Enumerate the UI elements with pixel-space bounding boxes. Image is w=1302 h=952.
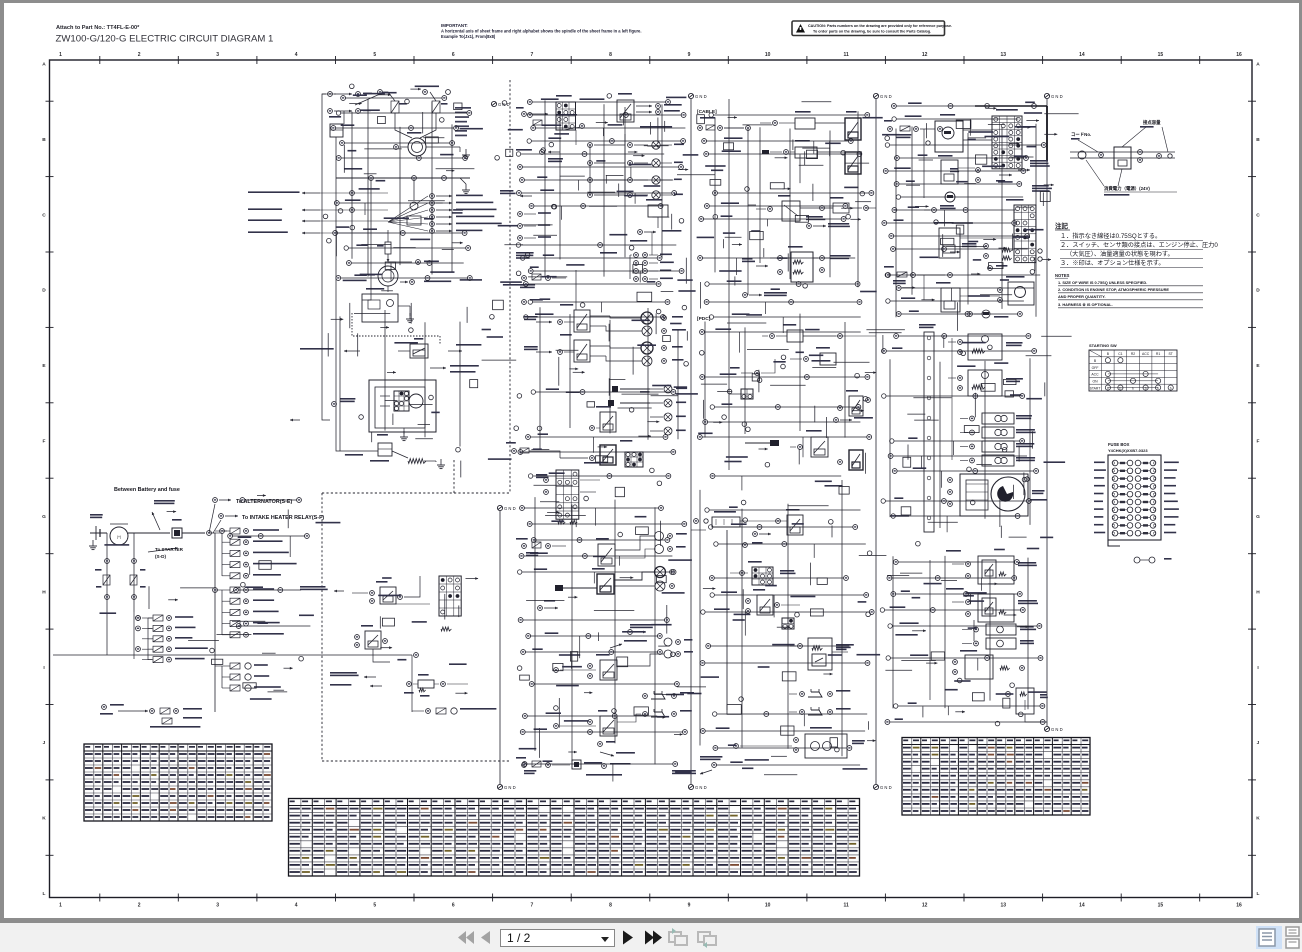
svg-text:K: K <box>42 816 46 822</box>
svg-text:START: START <box>1090 386 1101 390</box>
svg-text:（大気圧）、油量適量の状態を現わす。: （大気圧）、油量適量の状態を現わす。 <box>1066 250 1174 258</box>
svg-text:2. CONDITION IS ENGINE STOP, A: 2. CONDITION IS ENGINE STOP, ATMOSPHERIC… <box>1058 287 1169 292</box>
svg-text:３．※印は、オプション仕様を示す。: ３．※印は、オプション仕様を示す。 <box>1060 259 1165 267</box>
svg-text:H: H <box>42 589 46 595</box>
svg-text:4: 4 <box>295 52 298 58</box>
svg-text:7: 7 <box>531 903 534 909</box>
svg-text:16: 16 <box>1236 52 1242 58</box>
svg-text:C: C <box>1256 212 1260 218</box>
svg-text:14: 14 <box>1079 903 1085 909</box>
svg-text:10: 10 <box>765 52 771 58</box>
svg-text:To STARTER: To STARTER <box>155 547 184 552</box>
svg-text:E: E <box>42 363 46 369</box>
svg-text:L: L <box>1257 891 1260 897</box>
svg-text:2: 2 <box>138 52 141 58</box>
svg-text:A: A <box>1256 62 1260 68</box>
svg-text:6: 6 <box>452 903 455 909</box>
svg-text:Example To(Jx1), From(8x8): Example To(Jx1), From(8x8) <box>441 34 496 39</box>
svg-text:J: J <box>43 740 46 746</box>
svg-text:b: b <box>1120 387 1122 391</box>
svg-text:b: b <box>1145 387 1147 391</box>
svg-text:To INTAKE HEATER RELAY(S-F): To INTAKE HEATER RELAY(S-F) <box>242 515 324 521</box>
svg-text:ON: ON <box>1092 380 1098 384</box>
svg-text:A: A <box>42 62 46 68</box>
svg-text:ZW100-G/120-G ELECTRIC CIRCUIT: ZW100-G/120-G ELECTRIC CIRCUIT DIAGRAM 1 <box>56 34 274 45</box>
svg-text:14: 14 <box>1079 52 1085 58</box>
svg-text:[PDC]: [PDC] <box>697 316 711 322</box>
svg-text:G N D: G N D <box>1051 94 1063 99</box>
svg-text:6: 6 <box>452 52 455 58</box>
svg-text:3: 3 <box>216 52 219 58</box>
svg-text:コードNo.: コードNo. <box>1071 132 1091 137</box>
svg-text:To order parts on the drawing,: To order parts on the drawing, be sure t… <box>813 30 931 34</box>
svg-text:G N D: G N D <box>695 785 707 790</box>
svg-text:B: B <box>1094 359 1097 363</box>
svg-text:E: E <box>1256 363 1260 369</box>
svg-text:G N D: G N D <box>695 94 707 99</box>
svg-text:b: b <box>1157 387 1159 391</box>
svg-text:3: 3 <box>216 903 219 909</box>
svg-text:9: 9 <box>688 903 691 909</box>
svg-text:Attach to Part No.: TT4FL-E-00: Attach to Part No.: TT4FL-E-00* <box>56 25 140 31</box>
svg-text:IMPORTANT:: IMPORTANT: <box>441 23 468 28</box>
svg-text:b: b <box>1170 387 1172 391</box>
svg-text:2: 2 <box>138 903 141 909</box>
svg-text:b: b <box>1107 387 1109 391</box>
svg-text:12: 12 <box>922 903 928 909</box>
svg-text:注記: 注記 <box>1055 221 1069 230</box>
svg-text:G N D: G N D <box>504 785 516 790</box>
svg-text:15: 15 <box>1158 903 1164 909</box>
svg-text:消費電力（電源）(24V): 消費電力（電源）(24V) <box>1104 185 1150 192</box>
svg-text:CAUTION: Parts numbers on the: CAUTION: Parts numbers on the drawing ar… <box>808 24 952 28</box>
svg-text:Between Battery and fuse: Between Battery and fuse <box>114 487 180 493</box>
svg-text:R1: R1 <box>1156 352 1160 356</box>
svg-text:STARTING SW: STARTING SW <box>1089 343 1117 348</box>
svg-text:A horizontal axis of sheet fra: A horizontal axis of sheet frame and rig… <box>441 29 641 34</box>
svg-text:b: b <box>1132 387 1134 391</box>
svg-text:8: 8 <box>609 903 612 909</box>
svg-text:FUSE BOX: FUSE BOX <box>1108 442 1130 447</box>
svg-text:B: B <box>1256 137 1260 143</box>
svg-text:R2: R2 <box>1131 352 1135 356</box>
svg-text:K: K <box>1256 816 1260 822</box>
svg-text:J: J <box>1257 740 1260 746</box>
svg-text:9: 9 <box>688 52 691 58</box>
svg-text:11: 11 <box>844 52 850 58</box>
svg-text:5: 5 <box>373 52 376 58</box>
svg-text:OFF: OFF <box>1092 366 1099 370</box>
svg-text:G N D: G N D <box>880 94 892 99</box>
svg-text:G: G <box>1256 514 1260 520</box>
svg-text:L: L <box>43 891 46 897</box>
svg-text:1: 1 <box>59 903 62 909</box>
svg-text:ACC: ACC <box>1142 352 1150 356</box>
svg-text:(S-D): (S-D) <box>155 554 166 559</box>
svg-text:D: D <box>42 288 46 294</box>
svg-text:1: 1 <box>59 52 62 58</box>
svg-text:3. HARNESS ※ IS OPTIONAL.: 3. HARNESS ※ IS OPTIONAL. <box>1058 302 1113 307</box>
svg-text:１．指示なき線径は0.75SQとする。: １．指示なき線径は0.75SQとする。 <box>1060 232 1161 240</box>
svg-text:H: H <box>1256 589 1260 595</box>
svg-text:Y4CHK(X)XXB7-0323: Y4CHK(X)XXB7-0323 <box>1108 448 1148 453</box>
svg-text:ACC: ACC <box>1091 373 1099 377</box>
svg-text:G: G <box>42 514 46 520</box>
svg-text:ST: ST <box>1169 352 1173 356</box>
svg-text:13: 13 <box>1001 52 1007 58</box>
svg-text:15: 15 <box>1158 52 1164 58</box>
svg-text:C: C <box>42 212 46 218</box>
svg-text:13: 13 <box>1001 903 1007 909</box>
svg-text:G N D: G N D <box>880 785 892 790</box>
svg-text:AND PROPER QUANTITY.: AND PROPER QUANTITY. <box>1058 294 1106 299</box>
svg-text:10: 10 <box>765 903 771 909</box>
svg-text:4: 4 <box>295 903 298 909</box>
svg-text:[CABLE]: [CABLE] <box>697 109 717 115</box>
svg-text:11: 11 <box>844 903 850 909</box>
svg-text:B: B <box>1107 352 1110 356</box>
svg-text:G N D: G N D <box>1051 727 1063 732</box>
svg-text:F: F <box>43 439 46 445</box>
svg-text:NOTES: NOTES <box>1055 273 1070 278</box>
svg-text:1. SIZE OF WIRE IS 0.75SQ UNLE: 1. SIZE OF WIRE IS 0.75SQ UNLESS SPECIFI… <box>1058 280 1147 285</box>
svg-text:I: I <box>1257 665 1259 671</box>
svg-text:8: 8 <box>609 52 612 58</box>
svg-text:I: I <box>43 665 45 671</box>
svg-text:(+): (+) <box>117 535 121 539</box>
svg-text:7: 7 <box>531 52 534 58</box>
svg-text:16: 16 <box>1236 903 1242 909</box>
svg-text:12: 12 <box>922 52 928 58</box>
svg-text:接点容量: 接点容量 <box>1142 119 1161 126</box>
svg-text:G N D: G N D <box>498 102 510 107</box>
svg-text:B: B <box>42 137 46 143</box>
svg-text:２．スイッチ、センサ類の接点は、エンジン停止、圧力0: ２．スイッチ、センサ類の接点は、エンジン停止、圧力0 <box>1060 241 1218 249</box>
svg-text:D: D <box>1256 288 1260 294</box>
svg-text:G N D: G N D <box>504 506 516 511</box>
svg-text:C1: C1 <box>1118 352 1122 356</box>
svg-text:F: F <box>1257 439 1260 445</box>
svg-text:5: 5 <box>373 903 376 909</box>
